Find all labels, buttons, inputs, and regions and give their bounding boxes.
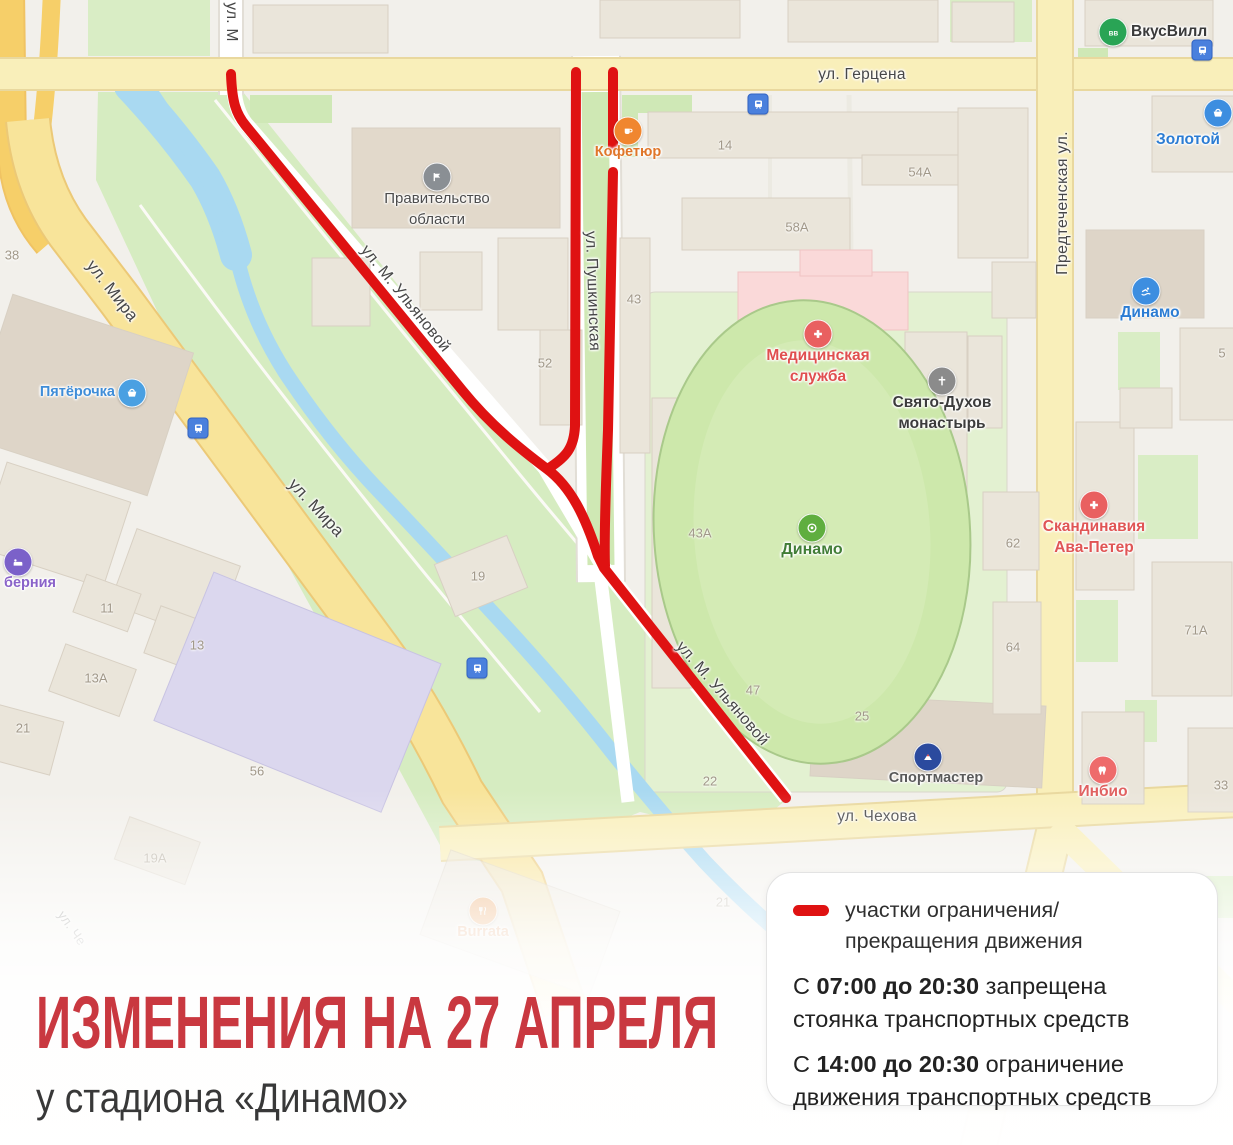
poi-label: Медицинская: [766, 347, 869, 365]
street-label-mira-1: ул. Мира: [82, 256, 142, 325]
house-number: 71А: [1184, 623, 1207, 638]
house-number: 62: [1006, 536, 1020, 551]
house-number: 56: [250, 764, 264, 779]
poi-label: берния: [4, 575, 56, 591]
house-number: 58А: [785, 220, 808, 235]
poi-label: ВкусВилл: [1131, 23, 1207, 41]
house-number: 43: [627, 292, 641, 307]
vkusvill-icon: ВВ: [1099, 18, 1128, 47]
flag-icon: [423, 163, 452, 192]
medical-cross-icon: [804, 320, 833, 349]
house-number: 38: [5, 248, 19, 263]
page-subtitle: у стадиона «Динамо»: [36, 1074, 945, 1122]
transit-stop-icon: [1192, 40, 1213, 61]
house-number: 19: [471, 569, 485, 584]
page-title: ИЗМЕНЕНИЯ НА 27 АПРЕЛЯ: [36, 986, 718, 1060]
shopping-basket-icon: [118, 379, 147, 408]
legend-item-restriction: участки ограничения/прекращения движения: [845, 895, 1189, 957]
street-label-predtechenskaya: Предтеченская ул.: [1054, 131, 1072, 275]
poi-label-2: области: [409, 211, 465, 228]
poi-label: Пятёрочка: [40, 384, 115, 400]
house-number: 52: [538, 356, 552, 371]
house-number: 47: [746, 683, 760, 698]
poi-label: Динамо: [781, 541, 842, 559]
house-number: 54А: [908, 165, 931, 180]
swimmer-icon: [1132, 277, 1161, 306]
svg-text:ВВ: ВВ: [1108, 30, 1118, 37]
house-number: 64: [1006, 640, 1020, 655]
poi-label: Скандинавия: [1043, 518, 1145, 536]
poi-label: Динамо: [1120, 304, 1179, 322]
transit-stop-icon: [188, 418, 209, 439]
church-cross-icon: [928, 367, 957, 396]
poi-label: Кофетюр: [595, 144, 661, 160]
hotel-bed-icon: [4, 548, 33, 577]
house-number: 14: [718, 138, 732, 153]
street-label-m-top: ул. М: [222, 2, 240, 41]
restricted-line-swatch: [793, 905, 829, 916]
poi-label: Свято-Духов: [893, 394, 992, 412]
house-number: 43А: [688, 526, 711, 541]
house-number: 13: [190, 638, 204, 653]
house-number: 22: [703, 774, 717, 789]
poi-label-2: монастырь: [898, 415, 985, 433]
house-number: 25: [855, 709, 869, 724]
poi-label: Спортмастер: [889, 770, 984, 786]
street-label-gertsena: ул. Герцена: [818, 66, 905, 84]
house-number: 21: [16, 721, 30, 736]
street-label-pushkinskaya: ул. Пушкинская: [581, 231, 603, 352]
house-number: 5: [1218, 346, 1225, 361]
tooth-icon: [1089, 756, 1118, 785]
transit-stop-icon: [467, 658, 488, 679]
house-number: 13А: [84, 671, 107, 686]
poi-label: Правительство: [384, 190, 489, 207]
title-block: ИЗМЕНЕНИЯ НА 27 АПРЕЛЯ у стадиона «Динам…: [36, 986, 1070, 1122]
street-label-mira-2: ул. Мира: [284, 475, 348, 542]
poi-label: Золотой: [1156, 131, 1220, 149]
shopping-basket-icon: [1204, 99, 1233, 128]
infographic-canvas: ул. Герцена ул. М ул. Мира ул. Мира ул. …: [0, 0, 1233, 1145]
transit-stop-icon: [748, 94, 769, 115]
mountain-icon: [914, 743, 943, 772]
football-icon: [798, 514, 827, 543]
house-number: 11: [100, 601, 114, 616]
coffee-cup-icon: [614, 117, 643, 146]
street-label-ulyanovoy-1: ул. М. Ульяновой: [356, 242, 453, 356]
medical-cross-icon: [1080, 491, 1109, 520]
poi-label-2: Ава-Петер: [1054, 539, 1134, 557]
poi-label-2: служба: [790, 368, 846, 386]
